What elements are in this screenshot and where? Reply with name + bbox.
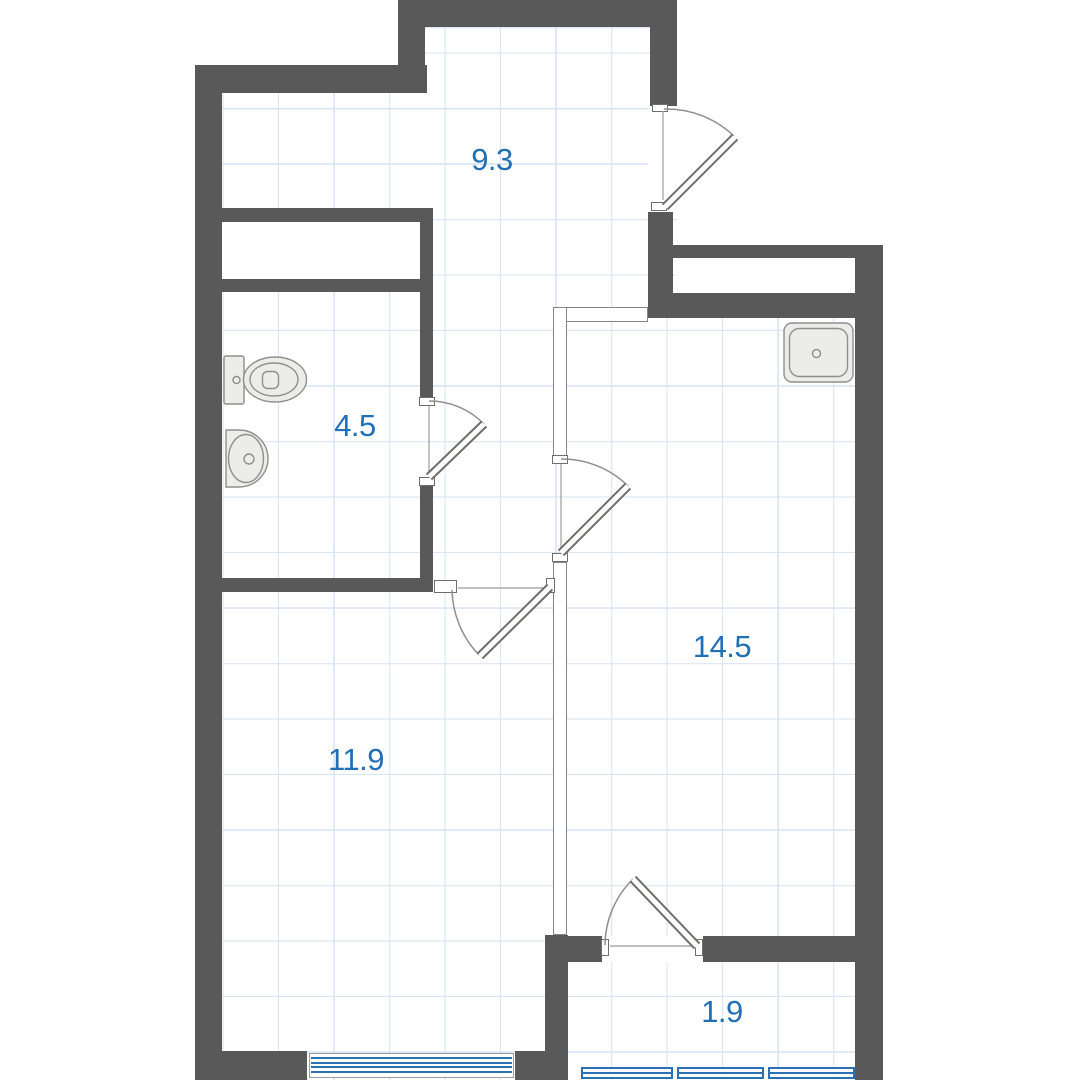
washbasin-icon — [226, 430, 268, 487]
entry-door — [663, 109, 735, 207]
kitchen-sink-icon — [784, 323, 853, 382]
doors-and-fixtures-layer — [0, 0, 1080, 1080]
floor-plan: 9.3 4.5 14.5 11.9 1.9 — [0, 0, 1080, 1080]
bathroom-door — [429, 401, 484, 477]
room-label-balcony: 1.9 — [701, 994, 743, 1030]
living-room-door — [561, 459, 628, 553]
balcony-door — [605, 879, 697, 946]
bedroom-door — [452, 587, 550, 656]
room-label-bathroom: 4.5 — [334, 408, 376, 444]
room-label-bedroom: 11.9 — [328, 742, 384, 778]
room-label-hallway: 9.3 — [471, 142, 513, 178]
toilet-icon — [224, 356, 307, 404]
room-label-kitchen-living: 14.5 — [693, 629, 751, 665]
